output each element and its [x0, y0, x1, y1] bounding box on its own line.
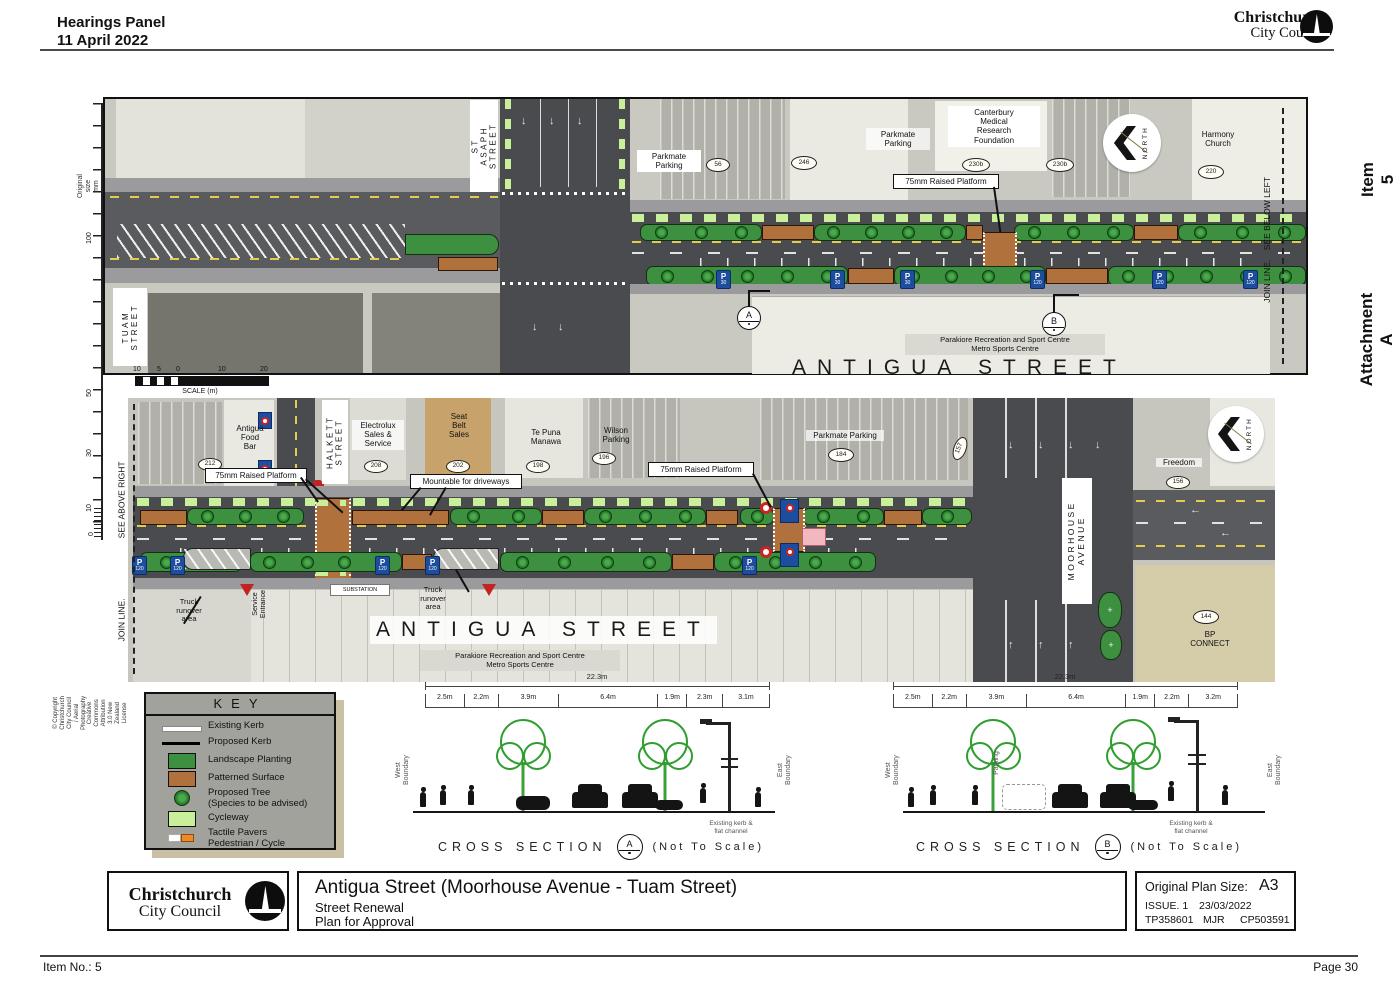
scale-tick: 0 — [176, 366, 180, 373]
ruler-mark-30: 30 — [84, 445, 96, 461]
substation-label: SUBSTATION — [330, 584, 390, 596]
tree-icon — [735, 226, 748, 239]
north-label: NORTH — [1137, 120, 1153, 166]
parking-sign: P120 — [170, 556, 185, 575]
landscape-planting — [584, 508, 706, 525]
join-line-label-top: JOIN LINE. SEE BELOW LEFT — [1258, 150, 1278, 330]
tree-icon — [701, 270, 714, 283]
scale-caption: SCALE (m) — [165, 388, 235, 395]
tree-icon — [729, 556, 742, 569]
tree-icon — [940, 226, 953, 239]
address-badge: 198 — [526, 460, 550, 473]
patterned-surface — [966, 225, 983, 240]
road-median-hatching — [117, 224, 405, 258]
ruler-mark-0: 0 — [86, 528, 98, 540]
tree-icon — [1028, 226, 1041, 239]
map-label-parkmate-3: Parkmate Parking — [806, 430, 884, 441]
footpath — [630, 200, 1306, 212]
tactile-paver-orange-swatch — [181, 834, 194, 842]
header-rule — [40, 49, 1334, 51]
landscape-planting — [1014, 224, 1134, 241]
tree-icon — [1279, 270, 1292, 283]
car-silhouette — [622, 792, 658, 808]
tb-logo-top: Christchurch — [121, 885, 239, 903]
map-label-parakiore-2: Parakiore Recreation and Sport Centre Me… — [420, 650, 620, 671]
north-compass: NORTH — [1103, 114, 1161, 172]
car-silhouette — [572, 792, 608, 808]
scale-tick: 20 — [260, 366, 268, 373]
join-line-dashed — [1282, 108, 1284, 364]
callout-mountable-driveways: Mountable for driveways — [410, 474, 522, 489]
no-stopping-sign-icon — [760, 546, 772, 558]
street-name-antigua-top: ANTIGUA STREET — [792, 356, 1127, 380]
join-line-label-bottom: JOIN LINE. — [112, 575, 132, 665]
address-badge: 202 — [446, 460, 470, 473]
lane-arrow-icon: ↓ — [577, 116, 583, 127]
plan-size-label: Original Plan Size: — [1145, 880, 1248, 894]
north-compass-2: NORTH — [1208, 406, 1264, 462]
footpath — [105, 178, 500, 192]
give-way-sign-icon — [482, 584, 496, 596]
key-legend: KEY Existing Kerb Proposed Kerb Landscap… — [144, 692, 336, 850]
key-label: Tactile Pavers Pedestrian / Cycle — [208, 828, 285, 850]
council-crest-icon — [1300, 10, 1333, 43]
address-badge: 156 — [1166, 476, 1190, 489]
scale-tick: 10 — [133, 366, 141, 373]
lane-arrow-icon: ↓ — [1038, 440, 1044, 451]
landscape-planting — [1178, 224, 1306, 241]
ruler-mark-10: 10 — [84, 500, 96, 516]
tree-icon — [857, 510, 870, 523]
footer-item-no: Item No.: 5 — [43, 960, 102, 974]
address-badge: 144 — [1193, 610, 1219, 624]
plan-size-value: A3 — [1259, 877, 1279, 895]
tree-icon — [661, 270, 674, 283]
bus-shelter — [802, 528, 826, 546]
address-badge: 56 — [706, 158, 730, 172]
parking-sign: P30 — [830, 270, 845, 289]
title-block-logo: Christchurch City Council — [107, 871, 289, 931]
patterned-surface — [438, 257, 498, 271]
tree-icon — [941, 510, 954, 523]
map-label-antigua-food-bar: Antigua Food Bar — [228, 424, 272, 452]
person-figure — [972, 790, 978, 805]
tree-icon — [827, 226, 840, 239]
footer-rule — [40, 955, 1358, 957]
lane-arrow-icon: ↓ — [1008, 440, 1014, 451]
dim-total-label-a: 22.3m — [567, 672, 627, 681]
lane-arrow-icon: ↓ — [558, 322, 564, 333]
dim-segments-b: 2.5m 2.2m 3.9m 6.4m 1.9m 2.2m 3.2m — [893, 694, 1238, 708]
parking-car-outline — [1002, 784, 1046, 810]
tb-logo-bottom: City Council — [121, 903, 239, 921]
callout-raised-platform: 75mm Raised Platform — [893, 174, 999, 189]
parking-sign: P120 — [425, 556, 440, 575]
scale-bar-checker — [135, 376, 181, 386]
tree-icon — [817, 510, 830, 523]
lane-arrow-icon: ↑ — [1068, 640, 1074, 651]
plan-title: Antigua Street (Moorhouse Avenue - Tuam … — [315, 877, 737, 899]
patterned-surface — [1134, 225, 1178, 240]
landscape-planting — [646, 266, 848, 286]
person-figure — [468, 790, 474, 805]
issue-date: 23/03/2022 — [1199, 900, 1252, 912]
address-badge: 246 — [791, 156, 817, 170]
tree-icon — [1107, 226, 1120, 239]
tree-icon — [601, 556, 614, 569]
lane-arrow-icon: ← — [1190, 505, 1201, 516]
tree-icon — [201, 510, 214, 523]
landscape-planting — [187, 508, 304, 525]
key-label: Landscape Planting — [208, 755, 291, 766]
patterned-surface — [706, 510, 738, 525]
council-crest-icon — [245, 881, 285, 921]
dim-total-b — [893, 680, 1238, 687]
lane-arrow-icon: ↓ — [549, 116, 555, 127]
ruler-title: Original size mm — [82, 140, 96, 232]
tree-icon — [1278, 226, 1291, 239]
plan-cp-number: CP503591 — [1240, 914, 1290, 926]
lane-arrow-icon: ↓ — [521, 116, 527, 127]
person-figure — [755, 792, 761, 807]
ruler-mark-100: 100 — [84, 228, 96, 248]
scale-tick: 10 — [218, 366, 226, 373]
traffic-island: + — [1098, 592, 1122, 628]
cycleway — [137, 498, 967, 506]
tree-icon — [1122, 270, 1135, 283]
patterned-surface — [542, 510, 584, 525]
callout-raised-platform-left: 75mm Raised Platform — [205, 468, 307, 483]
lamp-post — [1196, 720, 1199, 812]
address-badge: 208 — [364, 460, 388, 473]
aerial-building — [148, 293, 363, 373]
patterned-surface — [762, 225, 814, 240]
address-badge: 230b — [962, 158, 990, 172]
parking-sign: P120 — [742, 556, 757, 575]
dim-segments-a: 2.5m 2.2m 3.9m 6.4m 1.9m 2.3m 3.1m — [425, 694, 770, 708]
tree-icon — [174, 790, 190, 806]
tactile-paver-white-swatch — [168, 834, 181, 842]
patterned-surface — [140, 510, 187, 525]
street-label-tuam: TUAM STREET — [113, 288, 147, 366]
landscape-planting-swatch — [168, 753, 196, 769]
section-marker-b: B — [1042, 312, 1066, 336]
bus-stop-sign-icon — [780, 543, 799, 567]
address-badge: 184 — [828, 448, 854, 462]
patterned-surface — [672, 554, 714, 570]
truck-runover-label-2: Truck runover area — [404, 586, 462, 612]
cycleway-swatch — [168, 811, 196, 827]
tree-icon — [1236, 226, 1249, 239]
ground-line — [413, 811, 775, 813]
service-entrance-label: Service Entrance — [250, 578, 270, 630]
section-marker-b-caption: B — [1095, 834, 1121, 860]
tree-icon — [599, 510, 612, 523]
margin-item-label: Item 5 — [1360, 140, 1394, 220]
tree-icon — [902, 226, 915, 239]
east-boundary-label: East Boundary — [1268, 738, 1282, 802]
patterned-surface — [1046, 268, 1108, 284]
planting-silhouette — [655, 800, 683, 810]
key-label: Patterned Surface — [208, 773, 285, 784]
no-stopping-sign-icon — [760, 502, 772, 514]
tree-icon — [512, 510, 525, 523]
tree-icon — [1200, 270, 1213, 283]
map-label-seat-belt: Seat Belt Sales — [438, 412, 480, 440]
lane-arrow-icon: ↓ — [1068, 440, 1074, 451]
footer-page: Page 30 — [1296, 960, 1358, 974]
key-label: Cycleway — [208, 813, 249, 824]
proposed-kerb-swatch — [162, 742, 200, 745]
dim-total-label-b: 22.3m — [1035, 672, 1095, 681]
cyclist-figure — [700, 788, 706, 803]
plan-subtitle-1: Street Renewal — [315, 900, 404, 915]
tree-icon — [558, 556, 571, 569]
landscape-planting — [802, 508, 884, 525]
parking-label: Parking — [990, 740, 1004, 786]
callout-raised-platform-right: 75mm Raised Platform — [648, 462, 754, 477]
address-badge: 230b — [1046, 158, 1074, 172]
existing-kerb-swatch — [162, 726, 202, 732]
address-badge: 196 — [592, 452, 616, 465]
person-figure — [1222, 790, 1228, 805]
plan-initials: MJR — [1203, 914, 1225, 926]
aerial-building — [372, 293, 502, 373]
truck-runover-wedge — [183, 548, 251, 570]
car-silhouette — [1052, 792, 1088, 808]
landscape-planting — [814, 224, 966, 241]
map-label-electrolux: Electrolux Sales & Service — [352, 420, 404, 450]
landscape-planting — [405, 234, 499, 255]
parking-sign: P120 — [1152, 270, 1167, 289]
tree-icon — [277, 510, 290, 523]
scale-bar-solid — [179, 376, 225, 386]
title-block-info: Original Plan Size: A3 ISSUE. 1 23/03/20… — [1135, 871, 1296, 931]
parking-sign: P30 — [900, 270, 915, 289]
truck-runover-label-1: Truck runover area — [158, 598, 220, 624]
document-page: Hearings Panel 11 April 2022 Christchurc… — [0, 0, 1398, 989]
tree-icon — [982, 270, 995, 283]
section-marker-a: A — [737, 306, 761, 330]
tree-icon — [679, 510, 692, 523]
map-label-canterbury-medical: Canterbury Medical Research Foundation — [948, 106, 1040, 147]
landscape-planting — [450, 508, 542, 525]
tree-icon — [639, 510, 652, 523]
map-label-freedom: Freedom — [1156, 458, 1202, 467]
tree-icon — [643, 556, 656, 569]
patterned-surface — [848, 268, 894, 284]
tree-icon — [945, 270, 958, 283]
north-arrow-icon — [1216, 417, 1240, 451]
ruler-mark-50: 50 — [84, 385, 96, 401]
tree-icon — [516, 556, 529, 569]
plan-subtitle-2: Plan for Approval — [315, 914, 414, 929]
cross-section-b-caption: CROSS SECTION B (Not To Scale) — [916, 834, 1242, 860]
scale-bar-solid — [223, 376, 269, 386]
patterned-surface — [352, 510, 449, 525]
tree-icon — [695, 226, 708, 239]
key-label: Proposed Kerb — [208, 737, 271, 748]
parking-sign: P30 — [716, 270, 731, 289]
header-title: Hearings Panel — [57, 14, 165, 31]
person-figure — [930, 790, 936, 805]
street-label-halkett: HALKETT STREET — [322, 400, 348, 484]
issue-label: ISSUE. 1 — [1145, 900, 1188, 912]
footpath — [630, 284, 1306, 294]
tree-icon — [338, 556, 351, 569]
map-label-parakiore: Parakiore Recreation and Sport Centre Me… — [905, 334, 1105, 355]
map-label-wilson-parking: Wilson Parking — [592, 426, 640, 444]
cycleway — [632, 214, 1304, 222]
north-label: NORTH — [1241, 411, 1257, 457]
bus-stop-sign-icon — [780, 499, 799, 523]
tree-icon — [809, 556, 822, 569]
aerial-building — [790, 99, 908, 205]
plan-number: TP358601 — [1145, 914, 1193, 926]
tree-icon — [655, 226, 668, 239]
road-st-asaph — [500, 99, 630, 373]
tree-icon — [263, 556, 276, 569]
planting-silhouette — [516, 796, 550, 810]
west-boundary-label: West Boundary — [886, 738, 900, 802]
margin-attachment-label: Attachment A — [1360, 255, 1394, 425]
scale-tick: 5 — [157, 366, 161, 373]
tree-icon — [239, 510, 252, 523]
copyright-text: © Copyright Christchurch City Council / … — [84, 545, 98, 880]
landscape-planting — [500, 552, 672, 572]
key-label: Proposed Tree (Species to be advised) — [208, 788, 307, 810]
map-label-bp-connect: BP CONNECT — [1180, 630, 1240, 648]
parking-sign: P120 — [1030, 270, 1045, 289]
map-label-harmony-church: Harmony Church — [1188, 130, 1248, 148]
see-above-right-label: SEE ABOVE RIGHT — [112, 440, 132, 560]
header-date: 11 April 2022 — [57, 32, 148, 49]
tree-icon — [1194, 226, 1207, 239]
key-title: KEY — [146, 696, 334, 716]
aerial-building — [1192, 99, 1306, 207]
east-boundary-label: East Boundary — [778, 738, 792, 802]
west-boundary-label: West Boundary — [396, 738, 410, 802]
tree-icon — [467, 510, 480, 523]
lane-arrow-icon: ↓ — [532, 322, 538, 333]
lane-arrow-icon: ↓ — [1095, 440, 1101, 451]
footpath — [133, 486, 973, 497]
tree-icon — [865, 226, 878, 239]
lane-arrow-icon: ← — [1220, 528, 1231, 539]
planting-silhouette — [1128, 800, 1158, 810]
landscape-planting — [894, 266, 1046, 286]
patterned-surface — [884, 510, 922, 525]
landscape-planting — [922, 508, 972, 525]
tree-icon — [781, 270, 794, 283]
north-arrow-icon — [1112, 126, 1136, 160]
lane-arrow-icon: ↑ — [1008, 640, 1014, 651]
traffic-island: + — [1100, 630, 1122, 660]
tree-icon — [849, 556, 862, 569]
aerial-parking-lot — [660, 99, 785, 199]
tree-icon — [301, 556, 314, 569]
cross-section-a-caption: CROSS SECTION A (Not To Scale) — [438, 834, 764, 860]
title-block-main: Antigua Street (Moorhouse Avenue - Tuam … — [297, 871, 1127, 931]
street-label-st-asaph: ST ASAPH STREET — [470, 100, 498, 192]
patterned-surface-swatch — [168, 771, 196, 787]
parking-sign: P120 — [1243, 270, 1258, 289]
lane-arrow-icon: ↑ — [1038, 640, 1044, 651]
dim-total-a — [425, 680, 770, 687]
tree-icon — [741, 270, 754, 283]
map-label-te-puna: Te Puna Manawa — [518, 428, 574, 446]
cyclist-figure — [1168, 786, 1174, 801]
map-label-parkmate-2: Parkmate Parking — [866, 128, 930, 150]
person-figure — [908, 792, 914, 807]
ground-line — [903, 811, 1265, 813]
join-line-dashed — [133, 404, 135, 674]
person-figure — [420, 792, 426, 807]
tree-icon — [1067, 226, 1080, 239]
person-figure — [440, 790, 446, 805]
map-label-parkmate-1: Parkmate Parking — [637, 150, 701, 172]
key-label: Existing Kerb — [208, 721, 264, 732]
landscape-planting — [640, 224, 762, 241]
address-badge: 220 — [1198, 165, 1224, 179]
section-marker-a-caption: A — [617, 834, 643, 860]
street-label-moorhouse: MOORHOUSE AVENUE — [1062, 478, 1092, 604]
truck-runover-wedge — [433, 548, 499, 570]
parking-sign: P120 — [375, 556, 390, 575]
street-name-antigua-bottom: ANTIGUA STREET — [370, 616, 717, 644]
